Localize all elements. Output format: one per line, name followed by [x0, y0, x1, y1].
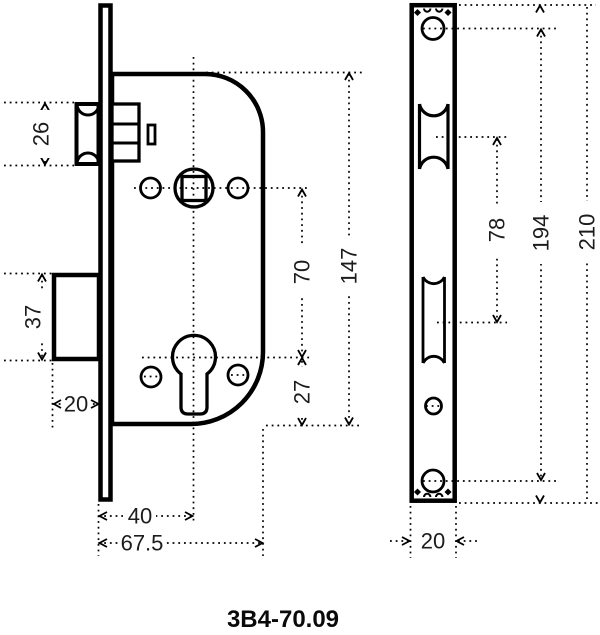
deadbolt [54, 275, 99, 359]
dim-deadbolt-throw: 20 [64, 392, 88, 417]
faceplate-outline [412, 5, 455, 501]
faceplate-edge [101, 6, 111, 500]
dim-deadbolt-height: 37 [21, 305, 46, 329]
dim-plate-height: 210 [575, 214, 600, 251]
dim-cylinder-to-edge: 27 [290, 380, 315, 404]
faceplate-view [412, 5, 455, 501]
dim-plate-width: 20 [421, 529, 445, 554]
dim-follower-to-cylinder: 70 [290, 260, 315, 284]
adjustment-slot [148, 125, 155, 144]
mortise-lock-drawing: 26 37 20 40 67.5 70 27 147 78 194 210 20… [0, 0, 600, 635]
dim-case-depth: 67.5 [121, 531, 164, 556]
dim-case-height: 147 [337, 248, 362, 285]
lock-body-view [54, 6, 263, 500]
part-number-label: 3B4-70.09 [227, 606, 339, 633]
dim-backset: 40 [128, 504, 152, 529]
technical-drawing-page: 26 37 20 40 67.5 70 27 147 78 194 210 20… [0, 0, 600, 635]
dim-latch-to-bolt: 78 [485, 218, 510, 242]
latch-block [112, 104, 139, 161]
dim-screw-spacing: 194 [529, 215, 554, 252]
dim-latch-height: 26 [29, 122, 54, 146]
